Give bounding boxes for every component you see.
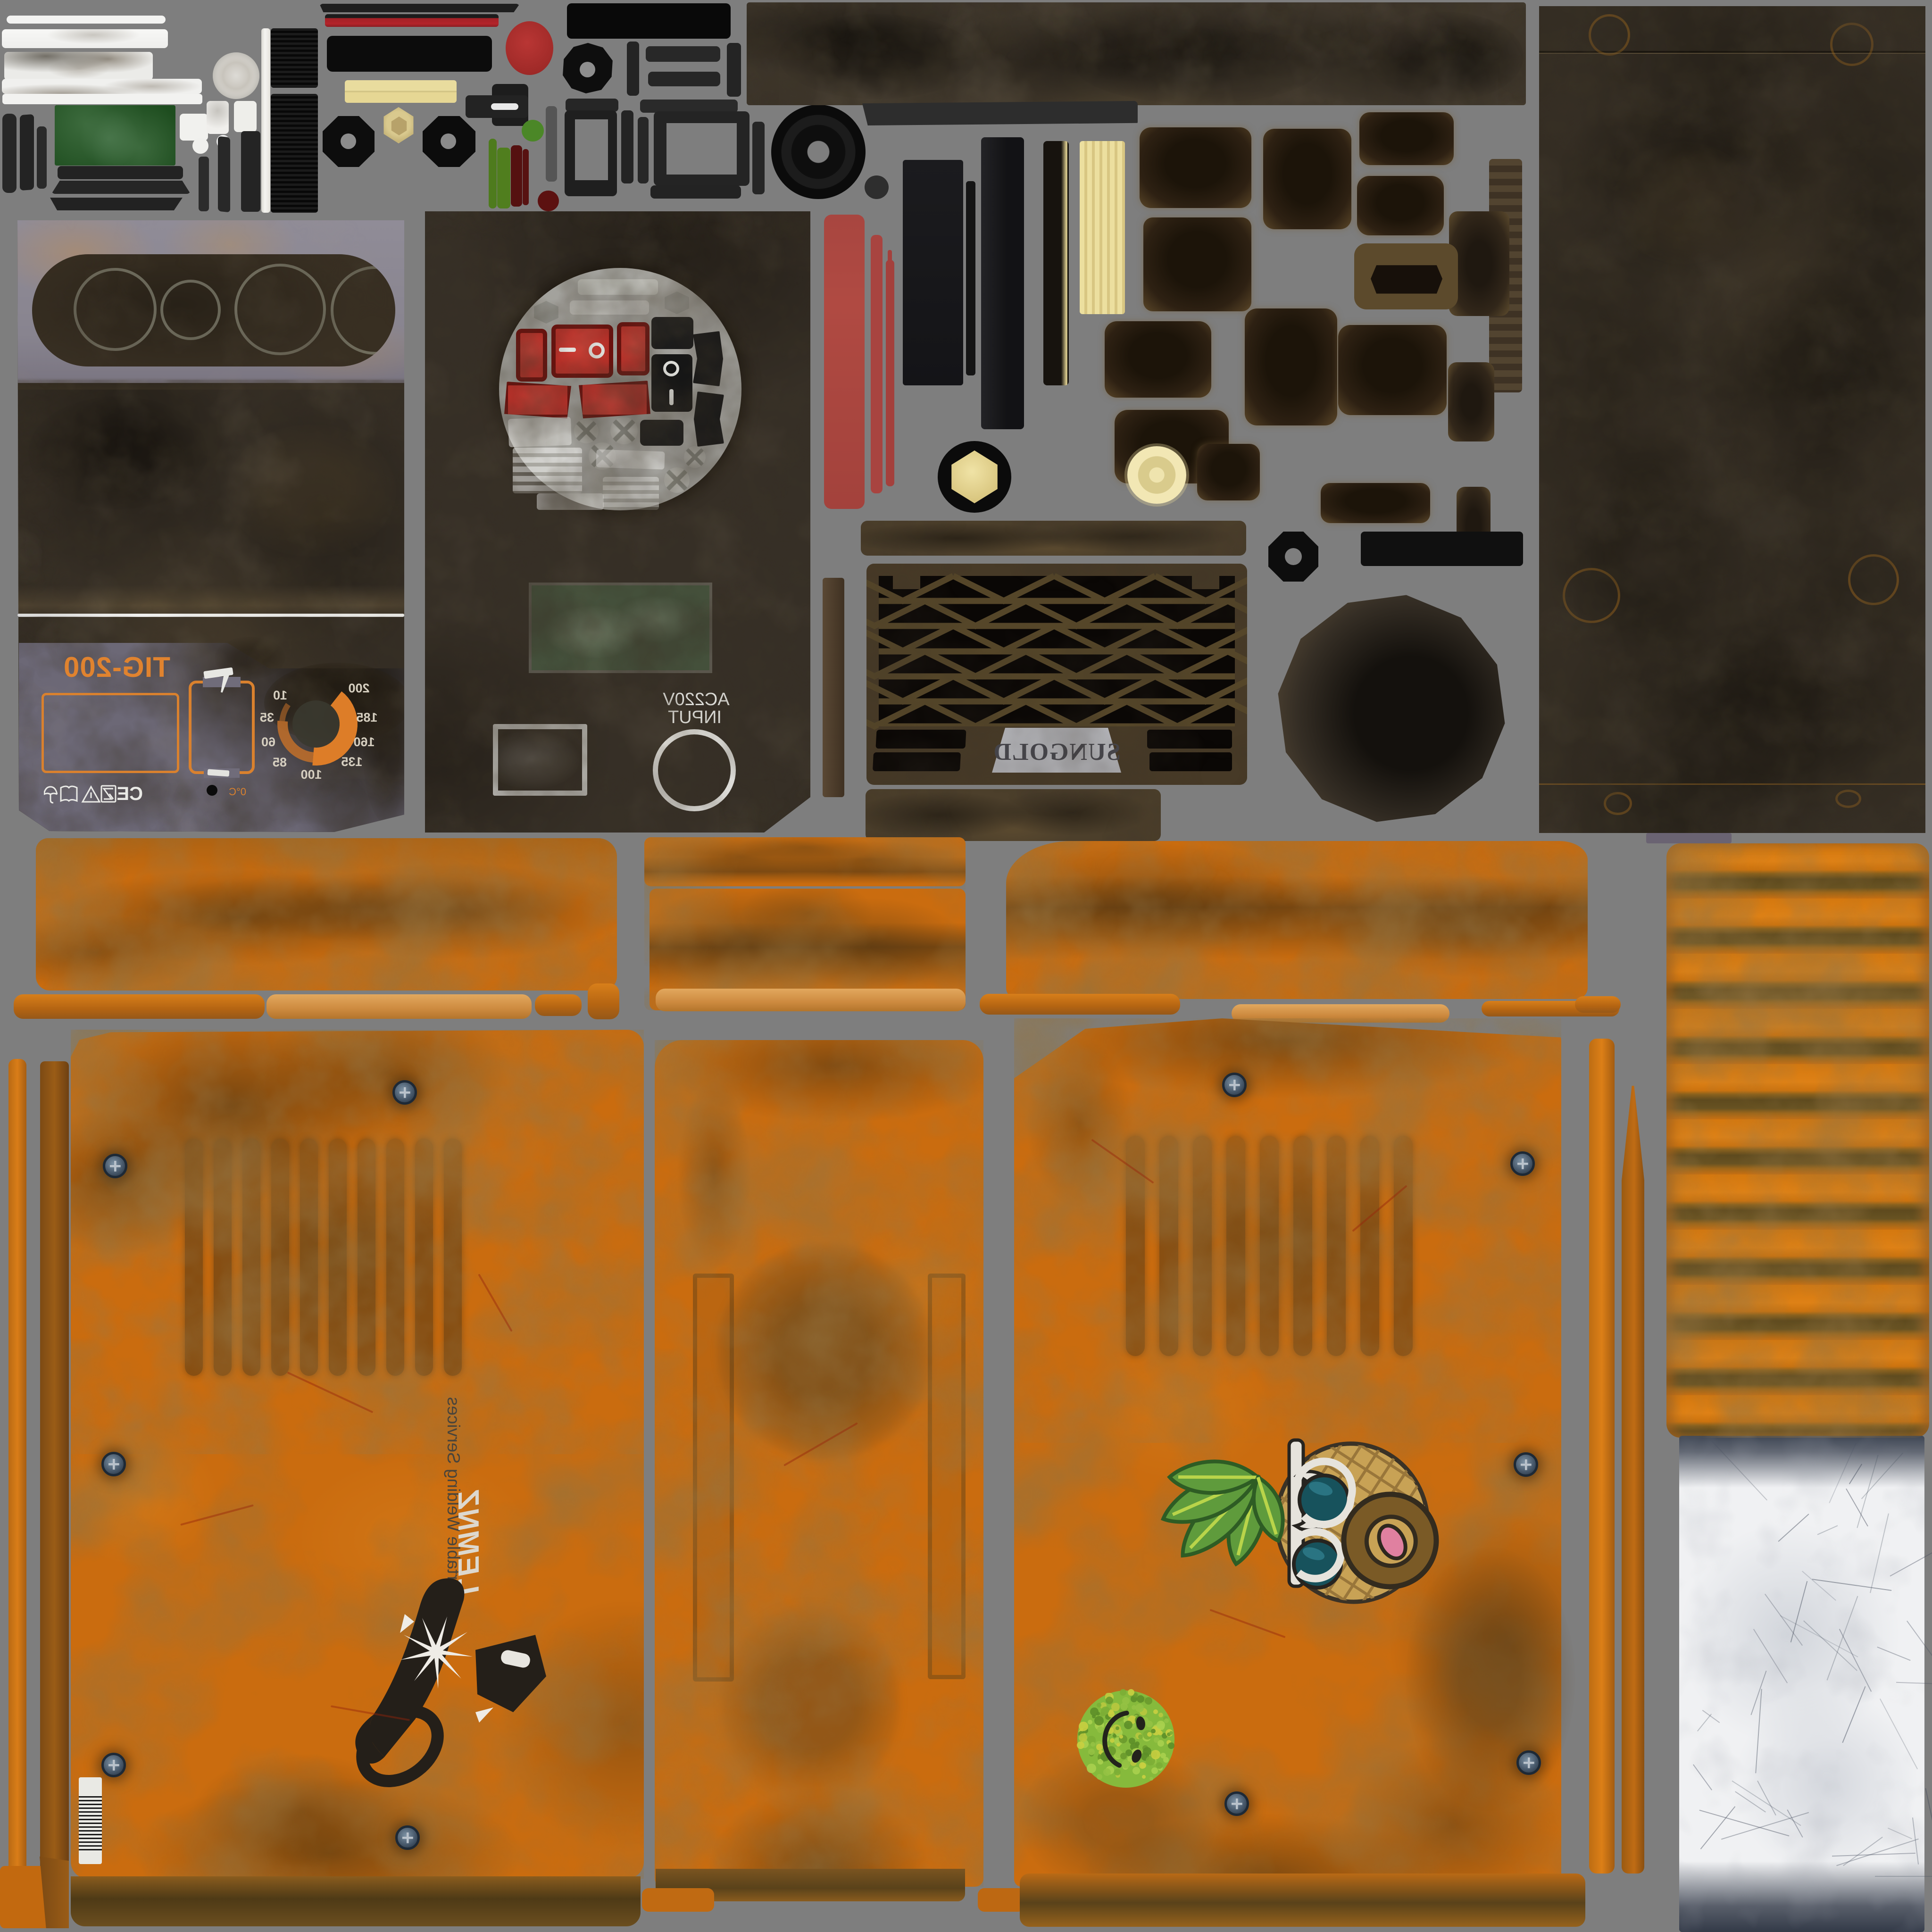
svg-text:35: 35 — [260, 710, 274, 724]
svg-text:185: 185 — [356, 710, 377, 724]
svg-text:100: 100 — [300, 767, 322, 782]
svg-text:135: 135 — [341, 755, 362, 769]
svg-text:SUNGOLD: SUNGOLD — [992, 739, 1120, 766]
svg-text:160: 160 — [353, 735, 375, 749]
svg-text:200: 200 — [348, 681, 369, 695]
svg-text:85: 85 — [273, 755, 287, 769]
svg-text:10: 10 — [273, 688, 287, 702]
svg-text:CE: CE — [117, 783, 143, 804]
svg-text:60: 60 — [261, 735, 275, 749]
